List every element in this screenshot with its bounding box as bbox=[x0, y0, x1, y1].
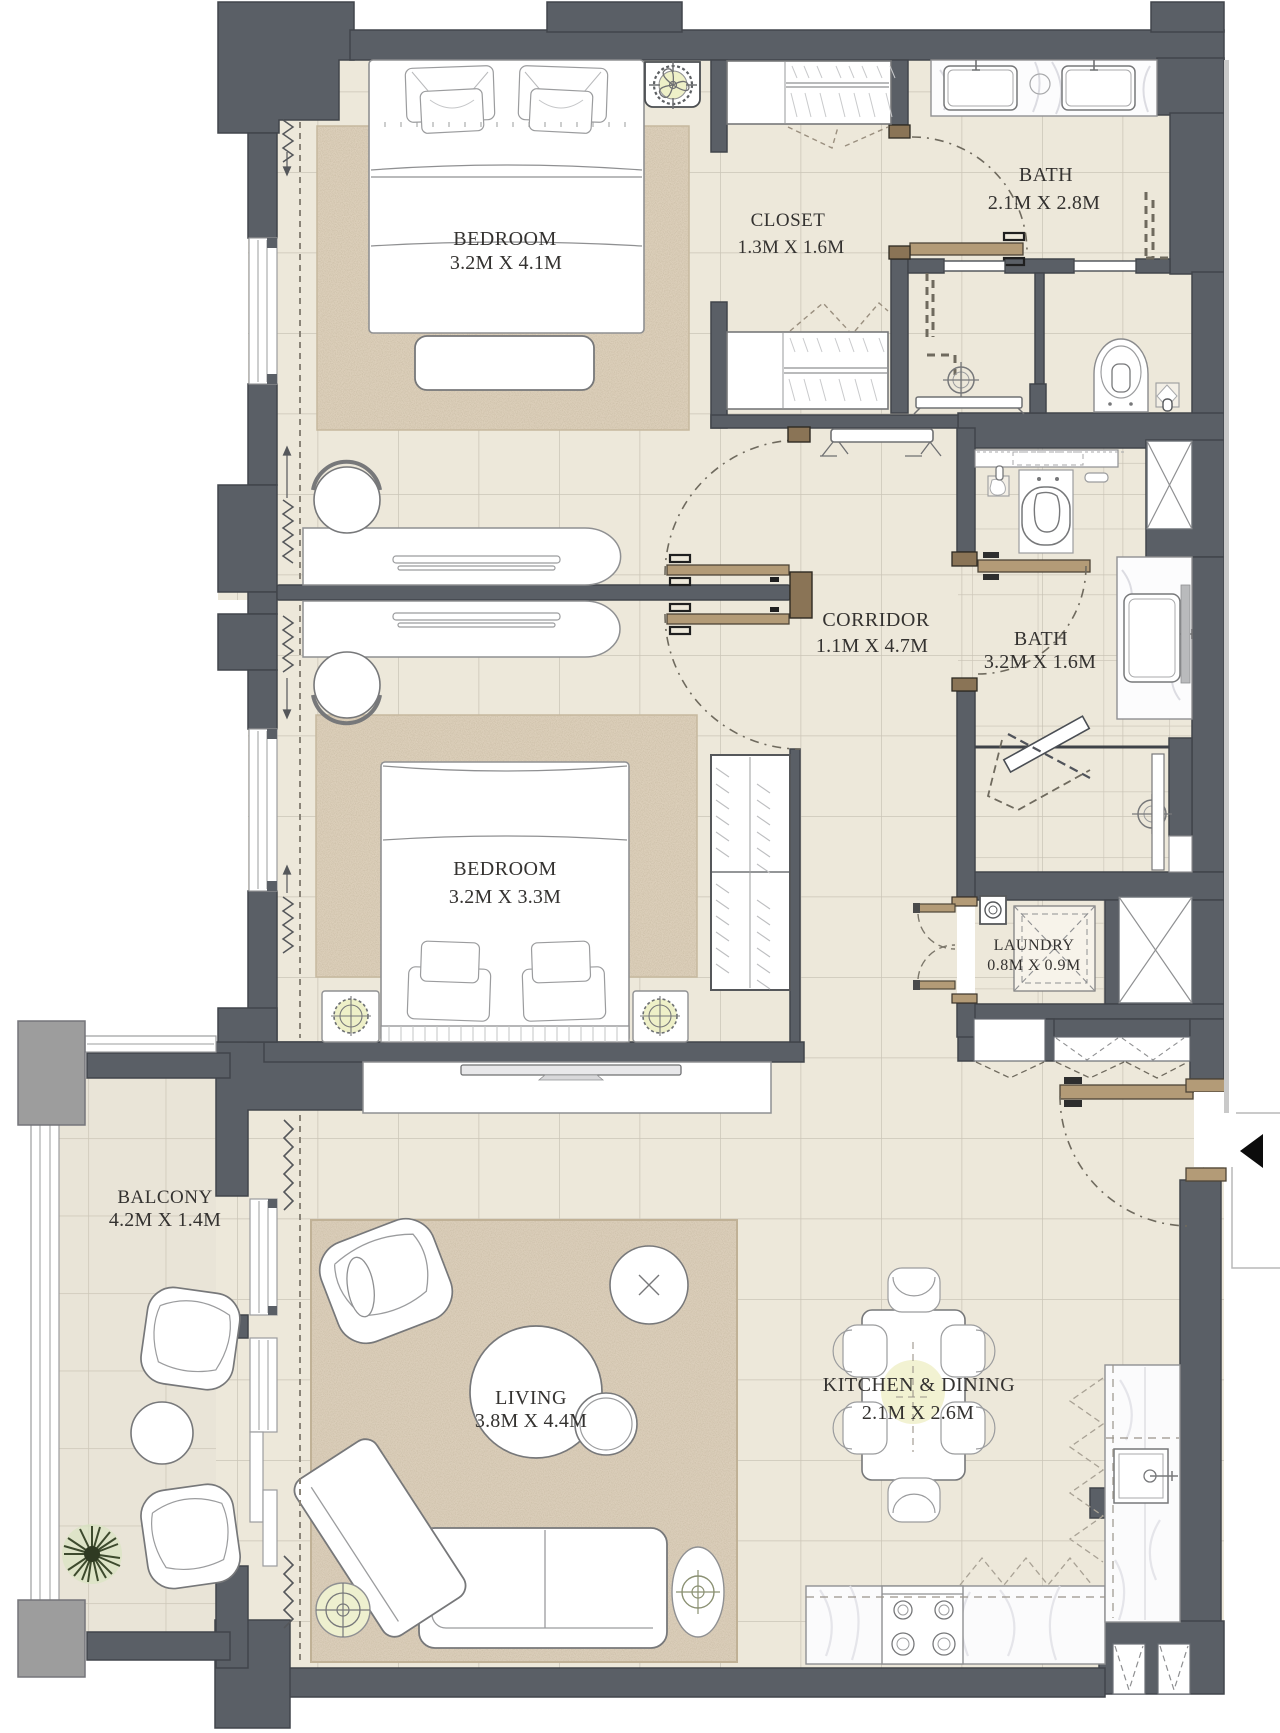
svg-text:CORRIDOR: CORRIDOR bbox=[822, 609, 930, 631]
svg-text:1.3M X 1.6M: 1.3M X 1.6M bbox=[738, 237, 845, 258]
svg-text:BALCONY: BALCONY bbox=[117, 1187, 212, 1208]
svg-text:BEDROOM: BEDROOM bbox=[453, 858, 557, 880]
svg-text:BATH: BATH bbox=[1014, 628, 1068, 650]
svg-text:LIVING: LIVING bbox=[495, 1387, 567, 1409]
svg-text:0.8M X 0.9M: 0.8M X 0.9M bbox=[987, 957, 1081, 974]
svg-text:LAUNDRY: LAUNDRY bbox=[994, 937, 1075, 954]
svg-text:KITCHEN & DINING: KITCHEN & DINING bbox=[823, 1374, 1015, 1396]
svg-text:BATH: BATH bbox=[1019, 164, 1073, 186]
svg-text:1.1M X 4.7M: 1.1M X 4.7M bbox=[816, 635, 928, 657]
svg-text:CLOSET: CLOSET bbox=[751, 210, 826, 231]
svg-text:2.1M X 2.8M: 2.1M X 2.8M bbox=[988, 192, 1100, 214]
svg-text:2.1M X 2.6M: 2.1M X 2.6M bbox=[862, 1402, 974, 1424]
svg-text:4.2M X 1.4M: 4.2M X 1.4M bbox=[109, 1209, 221, 1231]
svg-text:3.2M X 1.6M: 3.2M X 1.6M bbox=[984, 651, 1096, 673]
svg-text:BEDROOM: BEDROOM bbox=[453, 228, 557, 250]
svg-text:3.2M X 4.1M: 3.2M X 4.1M bbox=[450, 252, 562, 274]
svg-text:3.8M X 4.4M: 3.8M X 4.4M bbox=[475, 1410, 587, 1432]
svg-text:3.2M X 3.3M: 3.2M X 3.3M bbox=[449, 886, 561, 908]
